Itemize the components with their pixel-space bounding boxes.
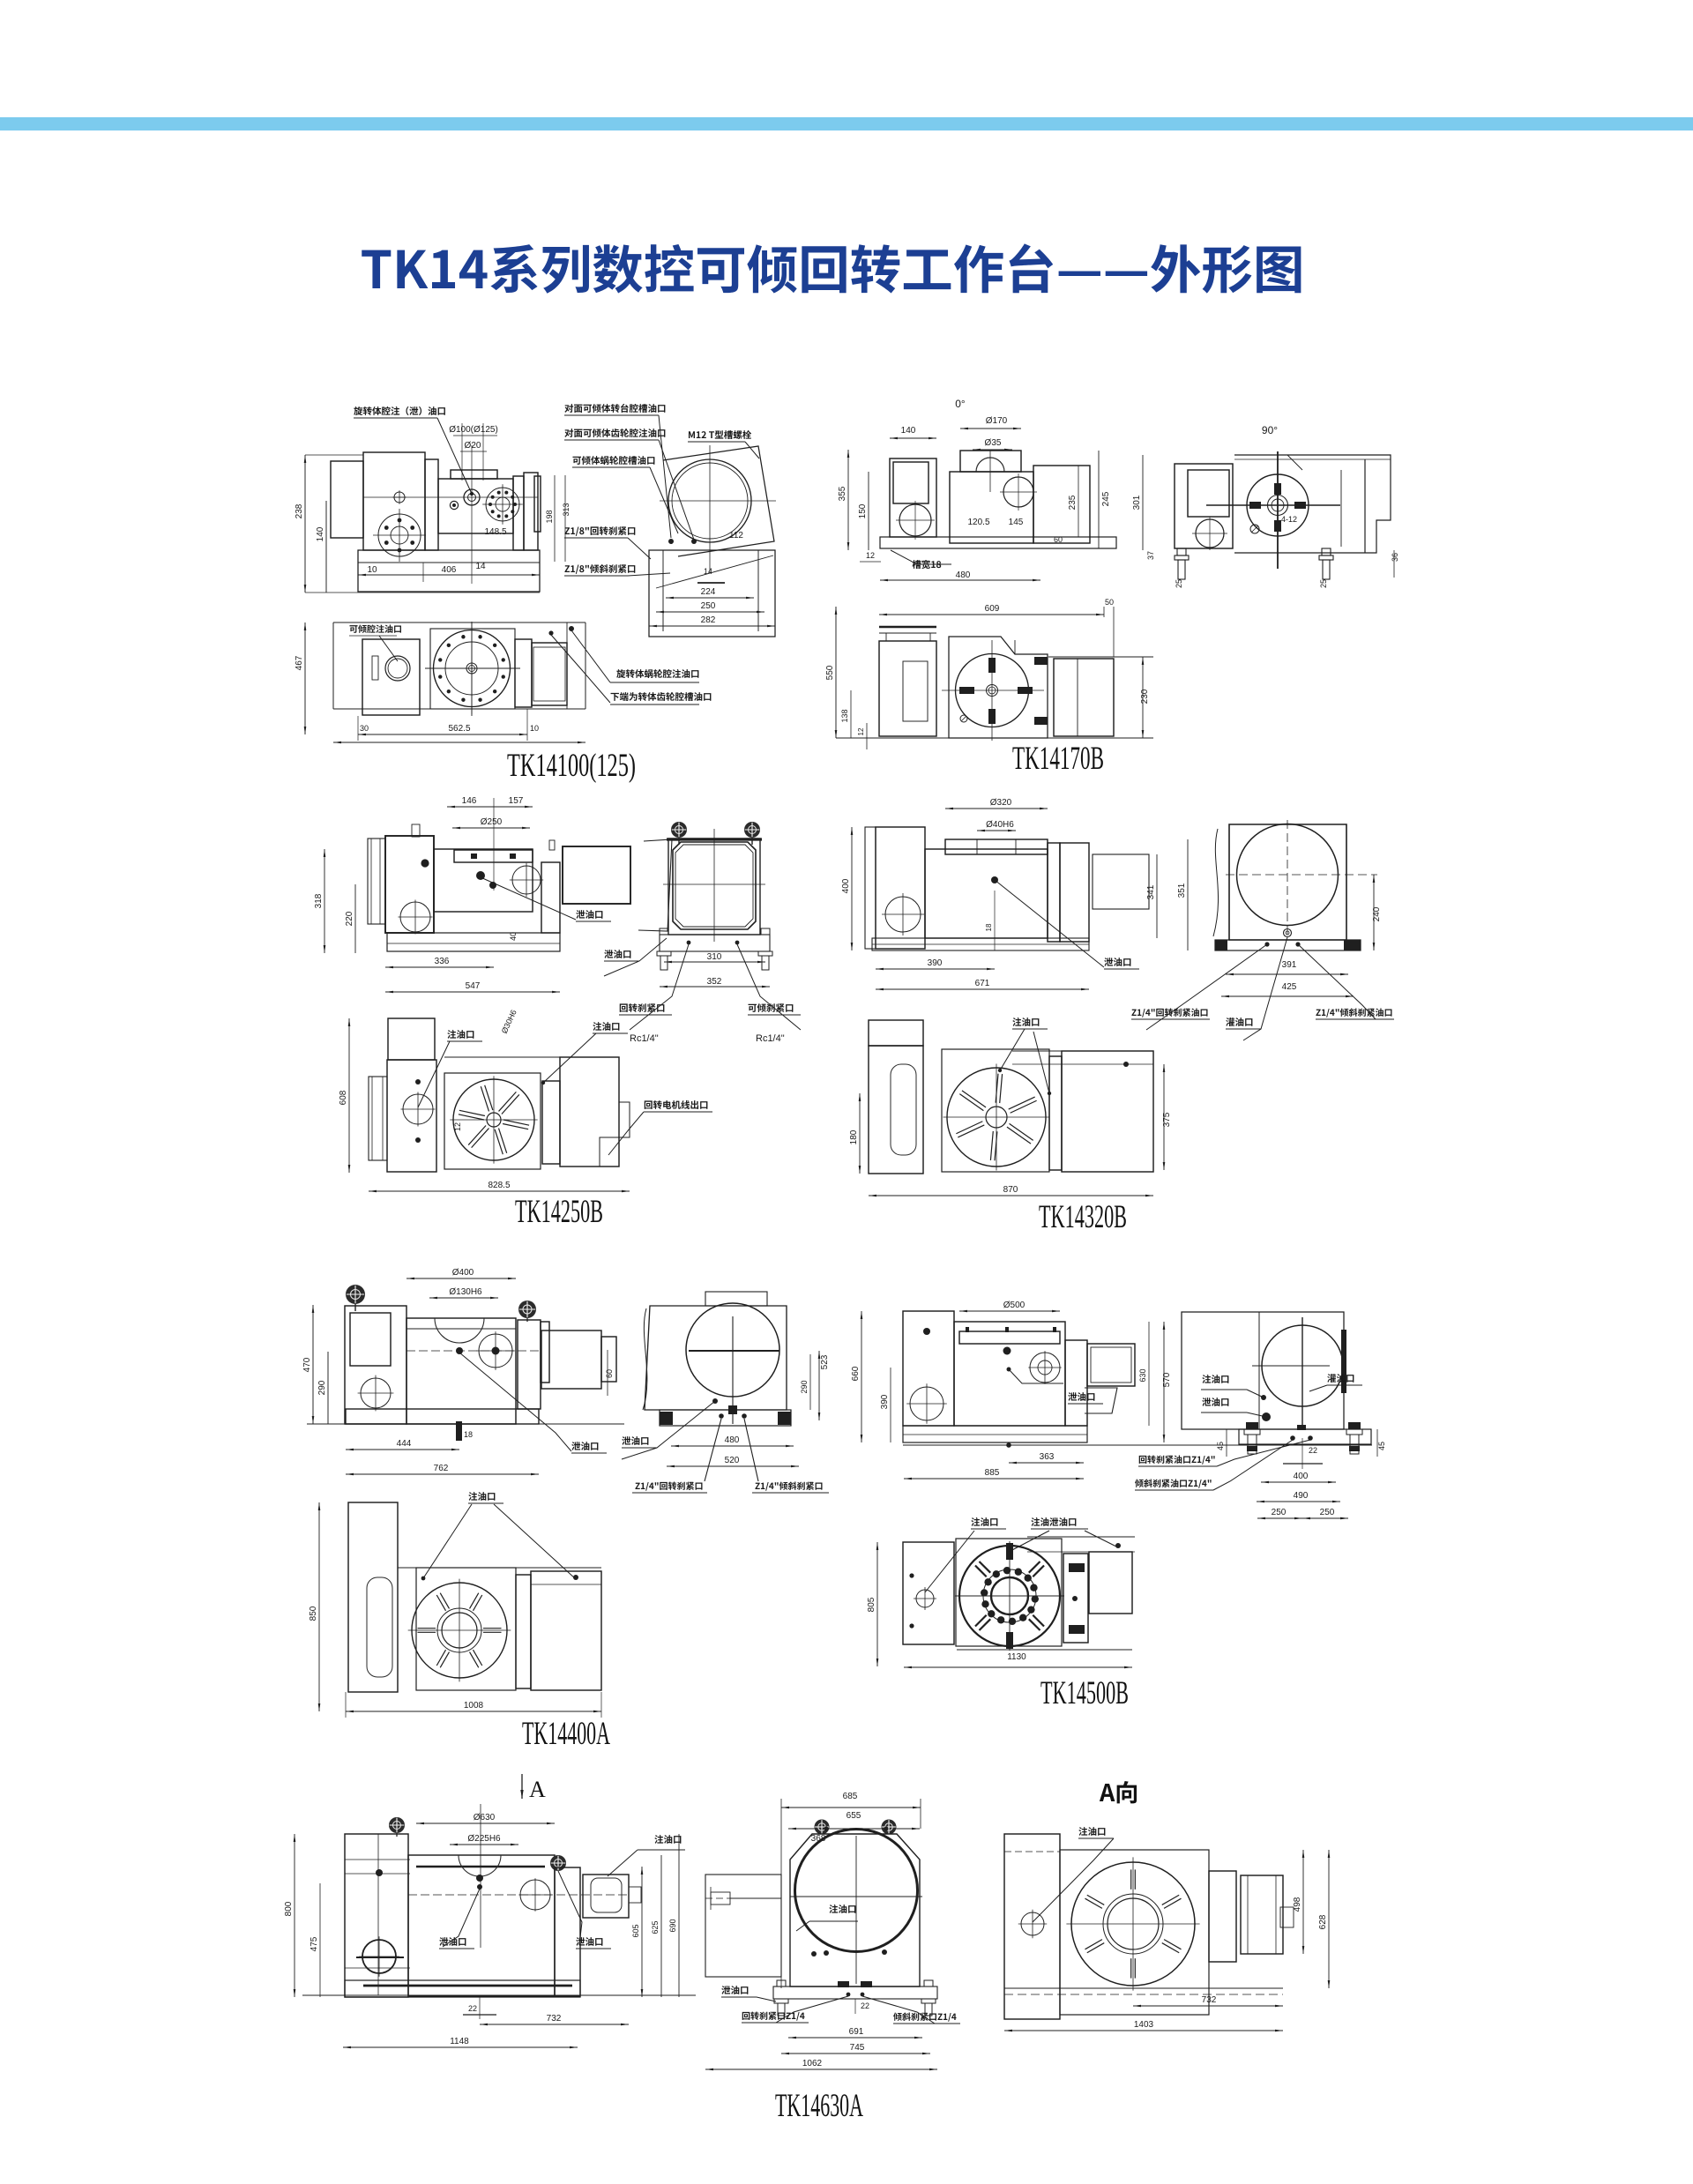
svg-text:148.5: 148.5 — [484, 527, 506, 537]
svg-text:Ø500: Ø500 — [1003, 1301, 1025, 1310]
svg-text:490: 490 — [1294, 1491, 1309, 1501]
svg-text:475: 475 — [310, 1936, 319, 1951]
svg-text:375: 375 — [1162, 1112, 1172, 1127]
svg-text:235: 235 — [1068, 495, 1078, 510]
svg-text:120.5: 120.5 — [967, 518, 989, 527]
svg-text:138: 138 — [840, 709, 849, 722]
svg-text:628: 628 — [1318, 1914, 1328, 1929]
svg-text:290: 290 — [317, 1380, 327, 1395]
svg-text:805: 805 — [867, 1597, 876, 1612]
svg-text:625: 625 — [651, 1920, 660, 1934]
svg-text:351: 351 — [1177, 883, 1187, 898]
svg-text:301: 301 — [1132, 495, 1142, 510]
svg-text:157: 157 — [509, 796, 524, 806]
svg-text:TK14170B: TK14170B — [1012, 741, 1104, 777]
svg-text:198: 198 — [545, 510, 554, 523]
svg-text:22: 22 — [468, 2004, 477, 2013]
svg-text:828.5: 828.5 — [488, 1181, 510, 1190]
svg-text:870: 870 — [1003, 1185, 1018, 1195]
svg-text:313: 313 — [562, 503, 571, 516]
svg-text:245: 245 — [1101, 491, 1111, 506]
svg-text:480: 480 — [725, 1435, 740, 1445]
svg-text:TK14100(125): TK14100(125) — [507, 748, 636, 784]
svg-text:732: 732 — [547, 2014, 562, 2024]
svg-text:444: 444 — [397, 1439, 412, 1449]
svg-text:10: 10 — [530, 724, 539, 733]
svg-text:762: 762 — [434, 1464, 449, 1473]
svg-text:22: 22 — [861, 2001, 869, 2010]
svg-text:520: 520 — [725, 1456, 740, 1465]
svg-text:90°: 90° — [1262, 424, 1278, 436]
svg-text:660: 660 — [851, 1366, 861, 1381]
svg-text:Rc1/4": Rc1/4" — [756, 1033, 785, 1044]
svg-text:406: 406 — [442, 565, 457, 575]
svg-text:290: 290 — [800, 1380, 809, 1393]
svg-text:850: 850 — [309, 1606, 318, 1621]
svg-text:800: 800 — [284, 1901, 294, 1916]
svg-text:1130: 1130 — [1007, 1652, 1026, 1662]
svg-text:745: 745 — [850, 2043, 865, 2053]
svg-text:250: 250 — [1320, 1508, 1335, 1517]
svg-text:36: 36 — [1391, 553, 1399, 562]
svg-text:60: 60 — [1054, 535, 1063, 544]
svg-text:12: 12 — [866, 551, 875, 560]
svg-text:230: 230 — [1140, 689, 1150, 704]
svg-text:390: 390 — [880, 1394, 890, 1409]
svg-text:400: 400 — [841, 878, 851, 893]
svg-text:282: 282 — [701, 615, 716, 625]
svg-text:18: 18 — [985, 923, 993, 931]
svg-text:Ø225H6: Ø225H6 — [467, 1834, 501, 1844]
svg-text:690: 690 — [668, 1919, 677, 1932]
svg-text:352: 352 — [707, 977, 722, 987]
svg-text:25: 25 — [1319, 579, 1328, 588]
svg-text:25: 25 — [1175, 579, 1183, 588]
svg-text:0°: 0° — [955, 398, 966, 410]
svg-text:240: 240 — [1372, 906, 1382, 921]
svg-text:Ø35: Ø35 — [985, 438, 1002, 448]
svg-text:547: 547 — [466, 981, 481, 991]
svg-text:140: 140 — [316, 526, 325, 541]
svg-text:112: 112 — [729, 531, 743, 540]
svg-text:Ø250: Ø250 — [481, 817, 503, 827]
svg-text:341: 341 — [1146, 884, 1156, 899]
svg-text:TK14400A: TK14400A — [522, 1716, 610, 1752]
svg-text:TK14630A: TK14630A — [775, 2088, 863, 2124]
svg-text:671: 671 — [975, 979, 990, 988]
svg-text:12: 12 — [857, 727, 865, 735]
svg-text:Ø400: Ø400 — [452, 1268, 474, 1278]
svg-text:609: 609 — [985, 604, 1000, 614]
svg-text:Ø170: Ø170 — [986, 416, 1008, 426]
svg-text:Ø40H6: Ø40H6 — [986, 820, 1014, 830]
svg-text:1403: 1403 — [1134, 2020, 1154, 2030]
svg-text:22: 22 — [1309, 1446, 1317, 1455]
svg-text:4-12: 4-12 — [1281, 515, 1297, 524]
svg-text:180: 180 — [849, 1129, 859, 1144]
svg-text:220: 220 — [345, 911, 354, 926]
svg-text:608: 608 — [339, 1090, 348, 1105]
svg-text:45: 45 — [1216, 1442, 1225, 1450]
svg-text:250: 250 — [1272, 1508, 1287, 1517]
svg-text:480: 480 — [956, 570, 971, 580]
svg-text:150: 150 — [858, 503, 868, 518]
svg-text:732: 732 — [1202, 1995, 1217, 2005]
svg-text:45: 45 — [1377, 1442, 1386, 1450]
svg-text:10: 10 — [367, 565, 377, 575]
svg-text:Ø130H6: Ø130H6 — [449, 1287, 482, 1297]
svg-text:TK14250B: TK14250B — [515, 1194, 603, 1230]
svg-text:14: 14 — [475, 562, 486, 571]
svg-text:310: 310 — [707, 952, 722, 962]
svg-text:605: 605 — [631, 1924, 640, 1937]
svg-text:655: 655 — [846, 1811, 861, 1821]
svg-text:470: 470 — [302, 1357, 312, 1372]
svg-text:140: 140 — [901, 426, 916, 436]
svg-text:224: 224 — [701, 587, 716, 597]
svg-text:145: 145 — [1009, 518, 1024, 527]
svg-text:Ø320: Ø320 — [990, 798, 1012, 808]
svg-text:562.5: 562.5 — [448, 724, 470, 734]
svg-text:885: 885 — [985, 1468, 1000, 1478]
svg-text:238: 238 — [295, 503, 304, 518]
svg-text:630: 630 — [1138, 1368, 1147, 1382]
svg-text:37: 37 — [1146, 551, 1155, 560]
svg-text:1008: 1008 — [464, 1701, 484, 1711]
svg-text:390: 390 — [928, 958, 943, 968]
svg-text:400: 400 — [1294, 1472, 1309, 1481]
svg-text:50: 50 — [1105, 598, 1114, 607]
svg-text:1148: 1148 — [450, 2037, 469, 2046]
svg-text:523: 523 — [820, 1354, 830, 1369]
svg-text:60: 60 — [605, 1369, 614, 1378]
svg-text:Ø20: Ø20 — [465, 441, 481, 451]
svg-text:391: 391 — [1282, 960, 1297, 970]
svg-text:363: 363 — [1040, 1452, 1055, 1462]
svg-text:498: 498 — [1293, 1897, 1302, 1912]
svg-text:467: 467 — [295, 655, 304, 670]
svg-text:Ø100(Ø125): Ø100(Ø125) — [449, 425, 498, 435]
svg-text:318: 318 — [314, 893, 324, 908]
svg-text:TK14500B: TK14500B — [1040, 1675, 1129, 1711]
svg-text:18: 18 — [464, 1430, 473, 1439]
svg-text:691: 691 — [849, 2027, 864, 2037]
svg-text:A: A — [529, 1777, 546, 1802]
svg-text:40: 40 — [509, 932, 518, 941]
svg-text:355: 355 — [838, 486, 847, 501]
svg-text:425: 425 — [1282, 982, 1297, 992]
svg-text:Rc1/4": Rc1/4" — [630, 1033, 659, 1044]
svg-text:1062: 1062 — [802, 2059, 823, 2068]
svg-text:146: 146 — [462, 796, 477, 806]
svg-text:Ø630: Ø630 — [474, 1813, 496, 1822]
svg-text:336: 336 — [435, 957, 450, 966]
svg-text:30: 30 — [360, 724, 369, 733]
svg-text:12: 12 — [453, 1122, 462, 1131]
svg-text:685: 685 — [843, 1792, 858, 1801]
svg-text:TK14320B: TK14320B — [1039, 1199, 1127, 1235]
svg-text:250: 250 — [701, 601, 716, 611]
svg-text:550: 550 — [825, 665, 835, 680]
svg-text:570: 570 — [1162, 1372, 1172, 1387]
